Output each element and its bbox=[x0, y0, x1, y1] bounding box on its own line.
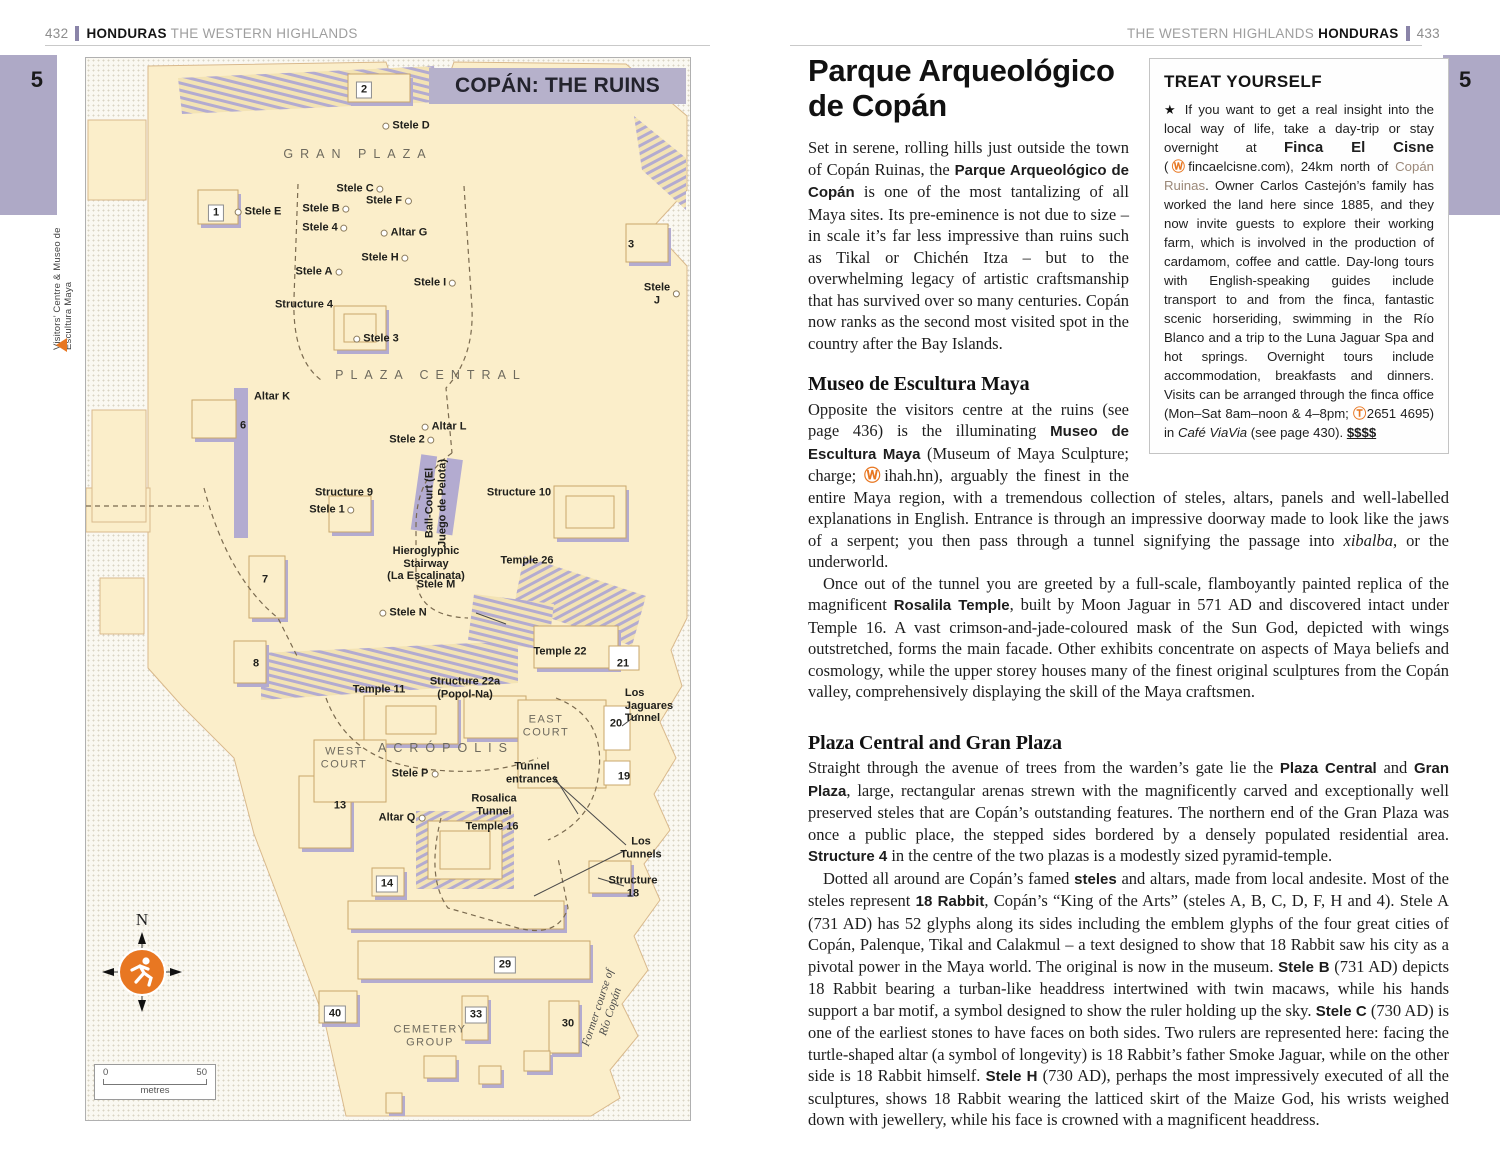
map-label: Structure 10 bbox=[487, 487, 551, 500]
map-label: Structure 18 bbox=[605, 874, 662, 899]
map-label: 13 bbox=[334, 800, 346, 813]
scale-fifty: 50 bbox=[196, 1067, 207, 1078]
map-label: Tunnel entrances bbox=[506, 760, 558, 785]
right-running-header: THE WESTERN HIGHLANDS HONDURAS 433 bbox=[1127, 26, 1440, 41]
map-label: CEMETERY GROUP bbox=[394, 1023, 467, 1048]
map-label: Hieroglyphic Stairway (La Escalinata) bbox=[387, 545, 465, 583]
map-label: 40 bbox=[324, 1006, 346, 1023]
map-label: Structure 22a (Popol-Na) bbox=[430, 675, 500, 700]
map-entrance-arrow-icon bbox=[56, 338, 67, 352]
map-label: Stele 4 bbox=[302, 222, 347, 235]
map-label: Temple 11 bbox=[353, 684, 405, 697]
map-label: 29 bbox=[494, 957, 516, 974]
plaza-paragraph-1: Straight through the avenue of trees fro… bbox=[808, 757, 1449, 868]
museo-paragraph-2: Once out of the tunnel you are greeted b… bbox=[808, 573, 1449, 703]
map-label: Stele A bbox=[296, 266, 343, 279]
section-heading-plaza: Plaza Central and Gran Plaza bbox=[808, 733, 1449, 755]
map-label: Stele 1 bbox=[309, 504, 354, 517]
right-chapter-tab: 5 bbox=[1443, 55, 1500, 215]
map-label: Stele 2 bbox=[389, 434, 434, 447]
map-label: Altar G bbox=[381, 227, 428, 240]
map-label: Stele I bbox=[414, 277, 456, 290]
map-label: PLAZA CENTRAL bbox=[335, 368, 527, 382]
chapter-number: 5 bbox=[31, 67, 43, 93]
left-header-rule bbox=[45, 45, 710, 46]
map-label: EAST COURT bbox=[523, 713, 569, 738]
right-page-number: 433 bbox=[1417, 26, 1440, 41]
map-label: Stele C bbox=[336, 183, 383, 196]
map-label: Rosalica Tunnel bbox=[471, 792, 516, 817]
right-page: TREAT YOURSELF ★ If you want to get a re… bbox=[808, 52, 1449, 1131]
header-tick bbox=[1406, 26, 1410, 41]
header-tick bbox=[75, 26, 79, 41]
scale-unit: metres bbox=[95, 1085, 215, 1096]
map-label: Altar Q bbox=[379, 812, 426, 825]
map-label: Stele B bbox=[302, 203, 349, 216]
map-label: Stele J bbox=[644, 281, 680, 306]
treat-box-body: ★ If you want to get a real insight into… bbox=[1164, 100, 1434, 442]
left-running-header: 432 HONDURAS THE WESTERN HIGHLANDS bbox=[45, 26, 358, 41]
map-label: Structure 4 bbox=[275, 299, 333, 312]
header-region: THE WESTERN HIGHLANDS bbox=[171, 26, 358, 41]
map-label: 21 bbox=[617, 658, 629, 671]
map-label: Stele 3 bbox=[353, 333, 398, 346]
map-label: 8 bbox=[253, 658, 259, 671]
map-label: Structure 9 bbox=[315, 487, 373, 500]
map-label: 3 bbox=[628, 239, 634, 252]
map-label: Ball-Court (El Juego de Pelota) bbox=[423, 459, 448, 547]
treat-yourself-box: TREAT YOURSELF ★ If you want to get a re… bbox=[1149, 58, 1449, 454]
left-page-number: 432 bbox=[45, 26, 68, 41]
map-label: Stele H bbox=[361, 252, 408, 265]
map-side-label: Visitors’ Centre & Museo de Escultura Ma… bbox=[52, 200, 74, 350]
chapter-number: 5 bbox=[1459, 67, 1471, 93]
map-label: Stele P bbox=[392, 768, 439, 781]
book-spread: { "colors":{"accent_orange":"#e87722","t… bbox=[0, 0, 1500, 1151]
map-label: WEST COURT bbox=[321, 745, 367, 770]
map-scale-bar: 050 metres bbox=[94, 1064, 216, 1100]
compass-icon bbox=[100, 930, 184, 1014]
map-label: 30 bbox=[562, 1018, 574, 1031]
map-label: Altar L bbox=[422, 421, 467, 434]
map-label: ACRÓPOLIS bbox=[378, 741, 514, 755]
treat-box-title: TREAT YOURSELF bbox=[1164, 72, 1434, 92]
map-label: GRAN PLAZA bbox=[283, 147, 432, 161]
map-label: Former course of Río Copán bbox=[579, 965, 630, 1054]
map-label: Temple 22 bbox=[534, 646, 587, 659]
map-label: Los Tunnels bbox=[617, 835, 666, 860]
map-label: 14 bbox=[376, 876, 398, 893]
scale-zero: 0 bbox=[103, 1067, 108, 1078]
map-label: Stele M bbox=[417, 579, 456, 592]
header-country: HONDURAS bbox=[1318, 26, 1398, 41]
header-country: HONDURAS bbox=[86, 26, 166, 41]
map-label: 2 bbox=[356, 82, 372, 99]
map-label: 33 bbox=[465, 1007, 487, 1024]
header-region: THE WESTERN HIGHLANDS bbox=[1127, 26, 1314, 41]
map-label: Temple 16 bbox=[466, 821, 519, 834]
compass-north-label: N bbox=[100, 910, 184, 930]
map-label: Los Jaguares Tunnel bbox=[625, 687, 673, 725]
map-label: Stele E bbox=[235, 206, 282, 219]
map-label: Altar K bbox=[254, 391, 290, 404]
map-label: 7 bbox=[262, 574, 268, 587]
map-label: Stele F bbox=[366, 195, 412, 208]
copan-ruins-map: COPÁN: THE RUINS 2Stele DGRAN PLAZAStele… bbox=[85, 57, 691, 1121]
map-label: Stele D bbox=[382, 120, 429, 133]
right-header-rule bbox=[790, 45, 1422, 46]
map-label: Stele N bbox=[379, 607, 426, 620]
left-chapter-tab: 5 bbox=[0, 55, 57, 215]
compass-rose: N bbox=[100, 910, 184, 1019]
map-label: 20 bbox=[610, 718, 622, 731]
map-label: 1 bbox=[208, 205, 224, 222]
map-label: Temple 26 bbox=[501, 555, 554, 568]
plaza-paragraph-2: Dotted all around are Copán’s famed stel… bbox=[808, 868, 1449, 1131]
map-label: 6 bbox=[240, 420, 246, 433]
map-label: 19 bbox=[618, 771, 630, 784]
